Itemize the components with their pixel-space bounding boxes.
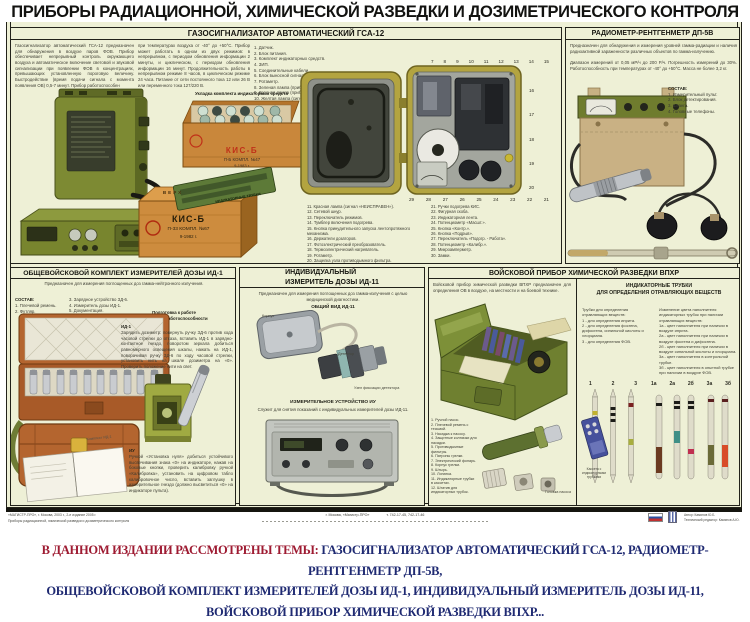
gsa12-callout-list-left: 11. Красная лампа (сигнал «НЕИСПРАВЕН»).… [307,204,425,263]
id11-label-korpus: Корпус [262,314,274,318]
id1-iu-text: Ручкой «Установка нуля» добиться устойчи… [129,454,233,494]
footer-microprint-line [262,521,488,522]
tubes-col1: Трубки для определения отравляющих вещес… [582,307,654,344]
poster-title: ПРИБОРЫ РАДИАЦИОННОЙ, ХИМИЧЕСКОЙ РАЗВЕДК… [2,3,747,22]
panel-vpkhr: ВОЙСКОВОЙ ПРИБОР ХИМИЧЕСКОЙ РАЗВЕДКИ ВПХ… [428,267,740,506]
footer-center: г. Москва, «Магистр-ПРО» т. 742-17-45, 7… [200,513,550,517]
flag-icon [648,513,663,522]
id11-iu-illustration [250,418,416,504]
footer-publisher: г. Москва, «Магистр-ПРО» [326,513,370,517]
dp5v-desc1: Предназначен для обнаружения и измерения… [570,43,737,54]
id11-detector [317,339,389,384]
dp5v-sostav-items: 1. Измерительный пульт. 2. Блок детектир… [668,92,738,115]
tubes-subpanel: ИНДИКАТОРНЫЕ ТРУБКИ ДЛЯ ОПРЕДЕЛЕНИЯ ОТРА… [576,279,740,506]
tubes-col2-intro: Изменение цвета наполнителя индикаторных… [659,307,723,323]
dp5v-header: РАДИОМЕТР-РЕНТГЕНМЕТР ДП-5В [566,28,739,40]
gsa12-callout-numbers-right: 1617181920 [529,88,534,190]
tube-2b [688,395,694,479]
tubes-cassette-label: Кассета с индикаторными трубками [577,467,611,479]
panel-gsa12: ГАЗОСИГНАЛИЗАТОР АВТОМАТИЧЕСКИЙ ГСА-12 Г… [10,27,562,264]
id1-sostav-title: СОСТАВ: [15,297,55,303]
dp5v-sostav-title: СОСТАВ: [668,86,687,91]
tubes-col1-items: 1 - для определения иприта. 2 - для опре… [582,318,654,344]
caption-line-1: В ДАННОМ ИЗДАНИИ РАССМОТРЕНЫ ТЕМЫ: ГАЗОС… [0,540,750,581]
publisher-logo-icon [668,511,677,523]
poster-bottom-band [6,508,742,512]
id1-purpose: Предназначен для измерения поглощенных д… [29,281,219,287]
dp5v-sostav: СОСТАВ: 1. Измерительный пульт. 2. Блок … [668,86,738,114]
gsa12-closed-crate-top: ВЕРХ [143,190,203,195]
id11-header: ИНДИВИДУАЛЬНЫЙ ИЗМЕРИТЕЛЬ ДОЗЫ ИД-11 [240,268,424,288]
vpkhr-components-list: 1. Ручной насос. 2. Плечевой ремень с те… [431,418,477,495]
gsa12-callout-numbers-bottom: 292827262524232221 [409,197,549,202]
caption-line1-text: ГАЗОСИГНАЛИЗАТОР АВТОМАТИЧЕСКИЙ ГСА-12, … [308,543,708,578]
id1-header: ОБЩЕВОЙСКОВОЙ КОМПЛЕКТ ИЗМЕРИТЕЛЕЙ ДОЗЫ … [11,268,235,279]
tubes-col2-items: 1а - цвет наполнителя при наличии в возд… [659,323,737,376]
panel-dp5v: РАДИОМЕТР-РЕНТГЕНМЕТР ДП-5В Предназначен… [565,27,740,264]
footer-left-line1: «МАГИСТР-ПРО», г. Москва, 2003 г., 2-е и… [8,513,96,517]
gsa12-desc-left: Газосигнализатор автоматический ГСА-12 п… [15,43,134,88]
id11-label-detektor: Детектор [338,352,354,356]
tube-2a [674,395,680,479]
tubes-cassette [581,416,608,459]
tubes-header: ИНДИКАТОРНЫЕ ТРУБКИ ДЛЯ ОПРЕДЕЛЕНИЯ ОТРА… [577,283,741,297]
gsa12-closed-crate-brand: КИС-Б [141,214,236,224]
footer-left-line2: Приборы радиационной, химической разведк… [8,519,129,523]
gsa12-open-crate-brand: КИС-Б [186,146,298,155]
gsa12-open-case-illustration [299,58,524,196]
id1-prep-text: Зарядить дозиметр: повернуть ручку ЗД-6 … [121,330,233,370]
caption-label: В ДАННОМ ИЗДАНИИ РАССМОТРЕНЫ ТЕМЫ: [42,543,319,557]
page: { "poster": { "title": "ПРИБОРЫ РАДИАЦИО… [0,0,750,600]
gsa12-open-crate-line2: П-Б КОМПЛ. №47 [186,157,298,162]
id1-iu-label: ИУ [129,448,149,454]
caption: В ДАННОМ ИЗДАНИИ РАССМОТРЕНЫ ТЕМЫ: ГАЗОС… [0,540,750,622]
id11-illustration [244,310,422,398]
panel-id1: ОБЩЕВОЙСКОВОЙ КОМПЛЕКТ ИЗМЕРИТЕЛЕЙ ДОЗЫ … [10,267,236,506]
id1-label: ИД-1 [121,324,151,330]
dp5v-desc2: Диапазон измерений от 0,05 мР/ч до 200 Р… [570,60,737,71]
tube-3a [708,395,714,479]
tube-1a [656,395,662,479]
tubes-col1-intro: Трубки для определения отравляющих вещес… [582,307,628,317]
gsa12-closed-crate-line3: 9-1982 г. [141,234,236,239]
id11-label-uzel: Узел фиксации детектора [354,386,400,391]
caption-line-3: ВОЙСКОВОЙ ПРИБОР ХИМИЧЕСКОЙ РАЗВЕДКИ ВПХ… [0,602,750,622]
tube-3 [629,389,634,483]
gsa12-kis-caption: Укладка комплекта индикаторных средств [179,91,304,97]
gsa12-sensor-unit [55,89,149,199]
gsa12-header: ГАЗОСИГНАЛИЗАТОР АВТОМАТИЧЕСКИЙ ГСА-12 [11,28,561,40]
tubes-illustration [577,387,741,505]
panel-id11: ИНДИВИДУАЛЬНЫЙ ИЗМЕРИТЕЛЬ ДОЗЫ ИД-11 Пре… [239,267,425,506]
caption-line-2: ОБЩЕВОЙСКОВОЙ КОМПЛЕКТ ИЗМЕРИТЕЛЕЙ ДОЗЫ … [0,581,750,602]
id11-iu-purpose: Служит для снятия показаний с индивидуал… [252,407,414,413]
gsa12-callout-numbers-top: 789101112131415 [431,59,549,64]
id11-purpose: Предназначен для измерения поглощенных д… [248,291,418,302]
gsa12-desc-right: при температурах воздуха от -40° до +50°… [138,43,250,88]
id11-iu-title: ИЗМЕРИТЕЛЬНОЕ УСТРОЙСТВО ИУ [240,400,426,406]
tube-3b [722,395,728,479]
vpkhr-intro: Войсковой прибор химической разведки ВПХ… [433,282,571,293]
vpkhr-header: ВОЙСКОВОЙ ПРИБОР ХИМИЧЕСКОЙ РАЗВЕДКИ ВПХ… [429,268,739,279]
footer-author: Автор: Камянов Ю.Б. [684,513,715,517]
vpkhr-pump [480,421,564,464]
vpkhr-pump-label: Головка насоса [541,490,575,494]
vpkhr-case-illustration [431,300,575,422]
tubes-col2: Изменение цвета наполнителя индикаторных… [659,307,737,375]
tube-2 [611,389,616,483]
footer-editor: Технический редактор: Камянов А.Ю. [684,518,740,522]
gsa12-callout-list-right: 21. Ручки подогрева КИС. 22. Фигурная ск… [431,204,549,258]
gsa12-closed-crate-line2: П-33 КОМПЛ. №67 [141,227,236,232]
gsa12-open-crate-line3: 9-1983 г. [186,163,298,168]
footer-phones: т. 742-17-45, 742-17-46 [386,513,424,517]
